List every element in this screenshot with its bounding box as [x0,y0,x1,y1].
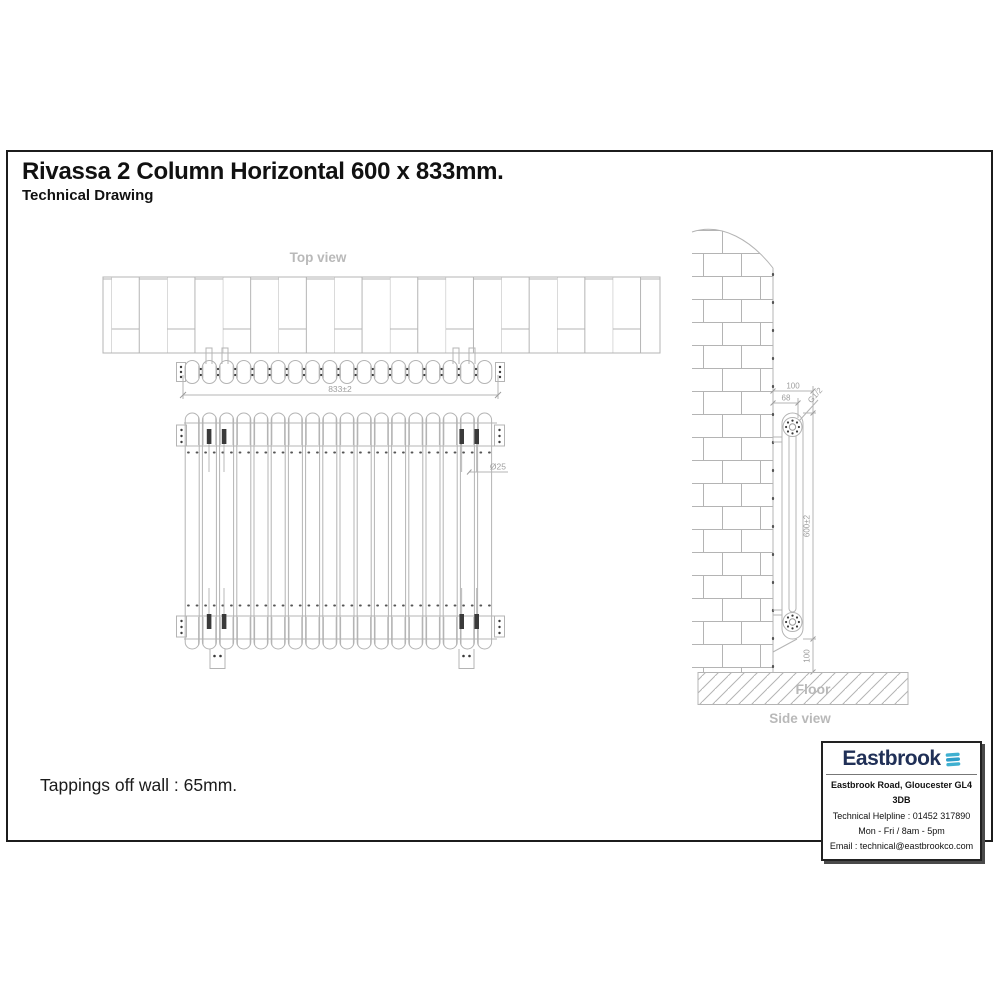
top-view-wall [103,277,660,353]
side-view-drawing: 100 68 G1/2 600±2 100 Floor Side view [692,222,908,726]
brand-logo: Eastbrook [826,747,977,775]
thread-size-text: G1/2 [806,385,825,404]
tappings-note: Tappings off wall : 65mm. [40,775,237,796]
wall-to-front-dimension-text: 100 [786,382,800,391]
side-view-label: Side view [769,711,831,726]
floor-clearance-dimension-text: 100 [803,649,812,663]
height-dimension-text: 600±2 [803,514,812,537]
front-view-drawing: Ø25 [177,413,509,669]
top-view-drawing: Top view [103,250,660,399]
top-view-radiator [177,361,505,384]
front-view-feet [210,649,474,669]
brand-info-box: Eastbrook Eastbrook Road, Gloucester GL4… [821,741,982,861]
side-view-wall [692,222,773,672]
waves-icon [945,752,961,767]
technical-drawing-page: Rivassa 2 Column Horizontal 600 x 833mm.… [0,0,1000,1000]
brand-helpline: Technical Helpline : 01452 317890 [826,809,977,824]
brand-name: Eastbrook [842,747,940,771]
front-view-bracket-clips [207,429,479,629]
wall-to-tapping-dimension-text: 68 [782,394,791,403]
side-view-bottom-tapping [783,613,802,632]
top-view-label: Top view [290,250,347,265]
front-view-columns [185,413,491,649]
column-diameter-dimension: Ø25 [467,462,508,475]
width-dimension-text: 833±2 [328,384,352,394]
floor-label: Floor [796,681,832,697]
column-diameter-text: Ø25 [490,462,506,472]
brand-email: Email : technical@eastbrookco.com [826,839,977,854]
brand-address: Eastbrook Road, Gloucester GL4 3DB [826,778,977,809]
side-view-radiator [773,413,803,652]
brand-hours: Mon - Fri / 8am - 5pm [826,824,977,839]
